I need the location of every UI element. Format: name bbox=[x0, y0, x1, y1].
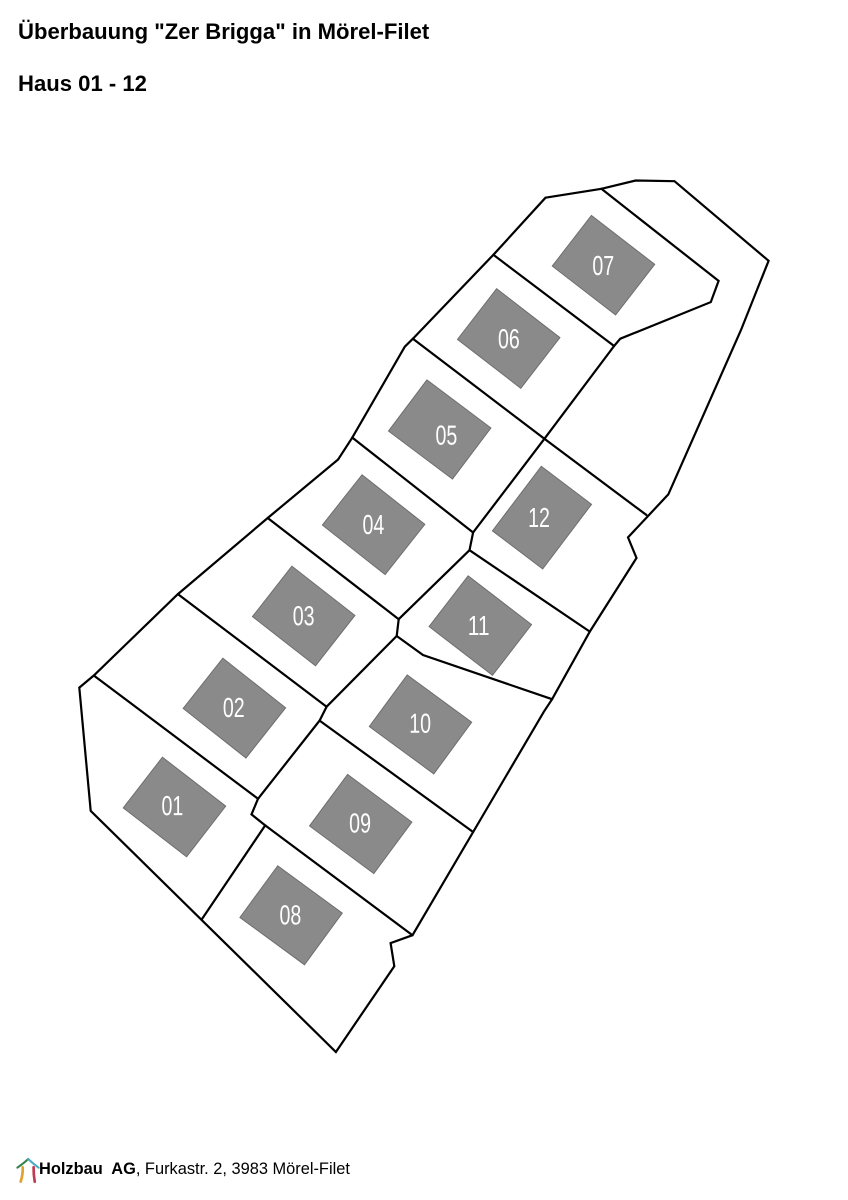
svg-text:08: 08 bbox=[280, 899, 302, 930]
svg-text:01: 01 bbox=[161, 790, 183, 821]
svg-text:05: 05 bbox=[435, 420, 457, 451]
svg-text:03: 03 bbox=[293, 600, 315, 631]
svg-text:02: 02 bbox=[223, 692, 245, 723]
svg-text:09: 09 bbox=[349, 808, 371, 839]
svg-text:04: 04 bbox=[363, 509, 385, 540]
svg-text:12: 12 bbox=[528, 502, 550, 533]
svg-text:11: 11 bbox=[468, 610, 490, 641]
svg-text:06: 06 bbox=[498, 323, 520, 354]
svg-text:10: 10 bbox=[409, 708, 431, 739]
svg-text:07: 07 bbox=[592, 250, 614, 281]
